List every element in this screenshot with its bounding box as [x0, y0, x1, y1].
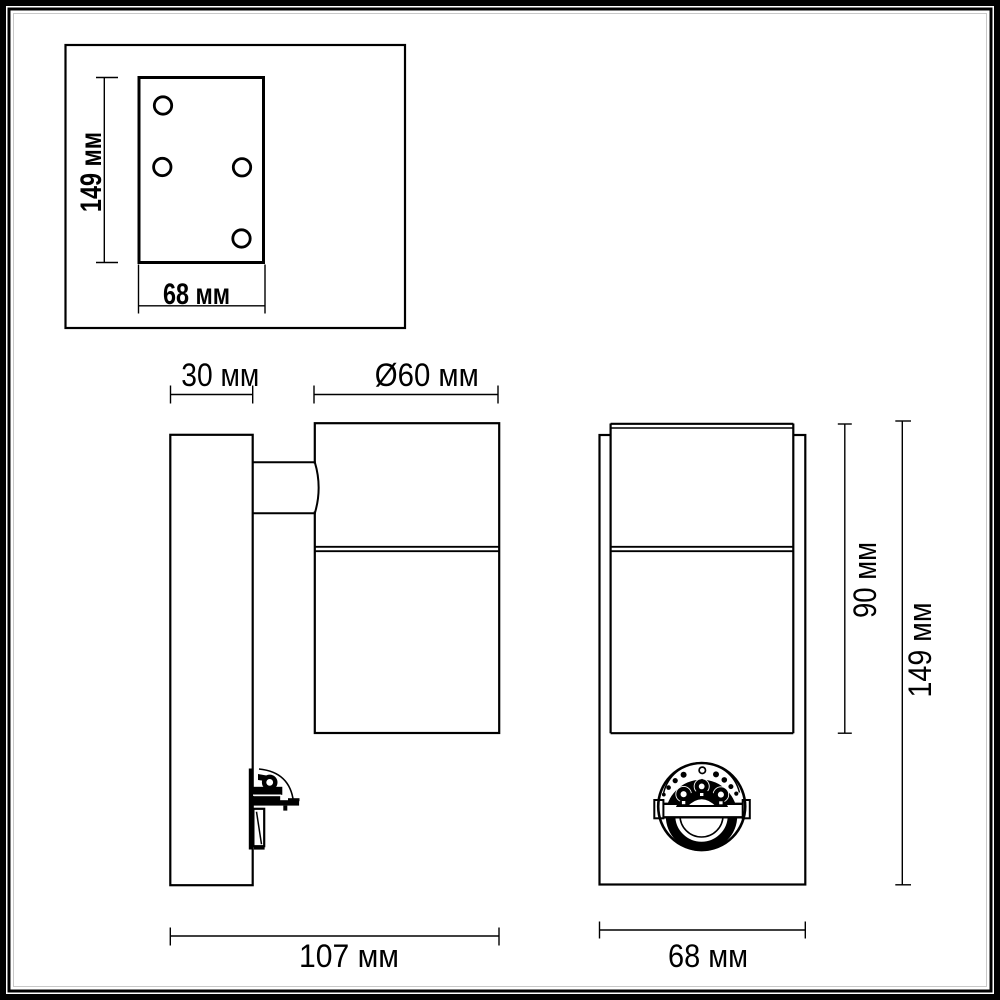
svg-text:107 мм: 107 мм	[299, 938, 399, 974]
svg-text:68 мм: 68 мм	[163, 277, 230, 310]
svg-text:68 мм: 68 мм	[668, 938, 748, 974]
svg-text:90 мм: 90 мм	[847, 542, 883, 618]
svg-text:30 мм: 30 мм	[181, 357, 259, 393]
svg-text:149 мм: 149 мм	[74, 132, 107, 212]
svg-text:149 мм: 149 мм	[902, 603, 938, 698]
svg-text:Ø60 мм: Ø60 мм	[375, 357, 479, 393]
